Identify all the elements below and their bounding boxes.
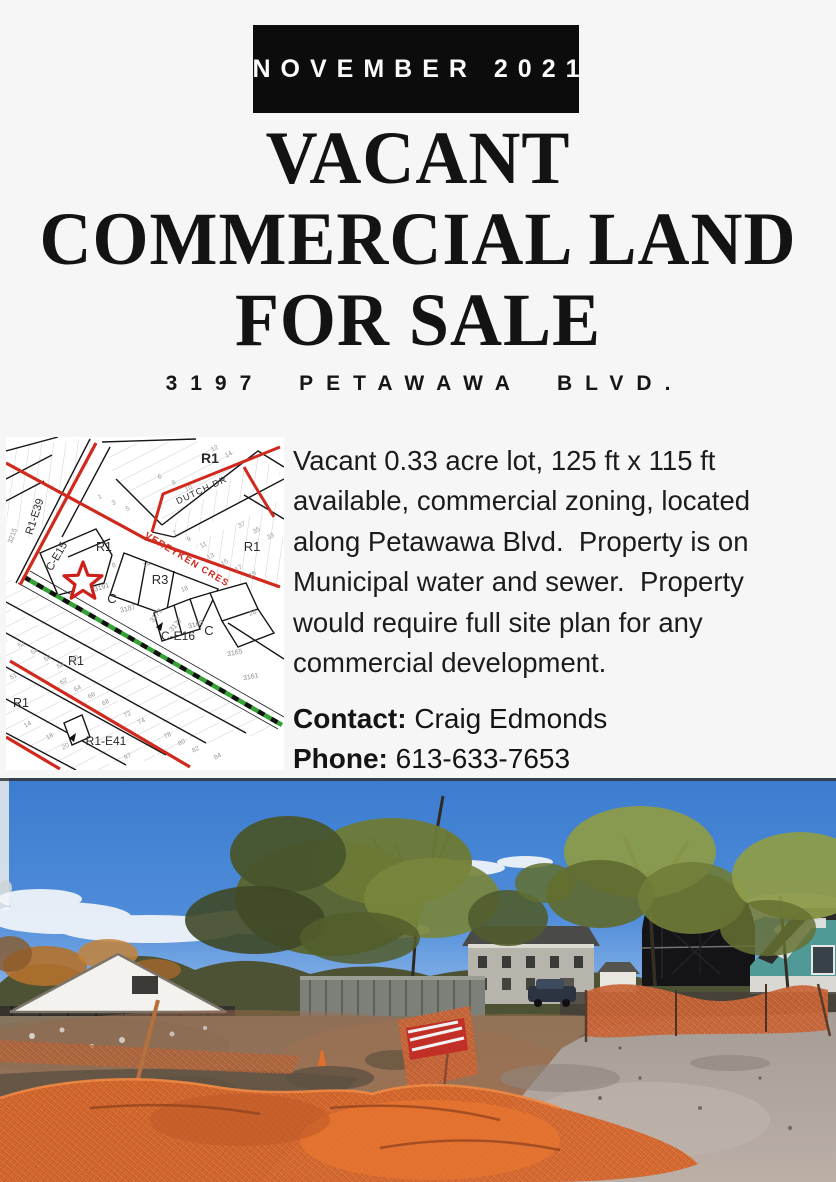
property-photo: [0, 778, 836, 1182]
property-description: Vacant 0.33 acre lot, 125 ft x 115 ft av…: [293, 441, 833, 683]
title-line-2: COMMERCIAL LAND: [0, 199, 836, 280]
zone-label: R1: [13, 696, 29, 710]
zone-label: C: [204, 623, 213, 638]
date-banner: NOVEMBER 2021: [253, 25, 579, 113]
phone-line: Phone: 613-633-7653: [293, 739, 607, 779]
contact-info: Contact: Craig Edmonds Phone: 613-633-76…: [293, 699, 607, 779]
photo-top-edge: [0, 778, 836, 781]
zone-label: R1: [96, 540, 112, 554]
address-subtitle: 3197 PETAWAWA BLVD.: [0, 372, 836, 396]
description-line: Municipal water and sewer. Property: [293, 562, 833, 602]
zone-label: C: [107, 591, 116, 606]
zone-label: R1: [244, 539, 261, 554]
zone-label: R1: [201, 450, 219, 466]
flyer-page: NOVEMBER 2021 VACANT COMMERCIAL LAND FOR…: [0, 0, 836, 1182]
description-line: commercial development.: [293, 643, 833, 683]
phone-number: 613-633-7653: [396, 743, 570, 774]
description-line: available, commercial zoning, located: [293, 481, 833, 521]
page-title: VACANT COMMERCIAL LAND FOR SALE: [0, 118, 836, 361]
title-line-3: FOR SALE: [0, 280, 836, 361]
exception-label: C-E16: [161, 629, 195, 643]
contact-name: Craig Edmonds: [414, 703, 607, 734]
description-line: Vacant 0.33 acre lot, 125 ft x 115 ft: [293, 441, 833, 481]
date-banner-label: NOVEMBER 2021: [242, 55, 589, 84]
phone-label: Phone:: [293, 743, 388, 774]
zoning-map: R1 DUTCH DR R1-E39 C-E15 R1 R3 C R1 C-E1…: [6, 437, 284, 770]
title-line-1: VACANT: [0, 118, 836, 199]
description-line: along Petawawa Blvd. Property is on: [293, 522, 833, 562]
contact-line: Contact: Craig Edmonds: [293, 699, 607, 739]
contact-label: Contact:: [293, 703, 407, 734]
description-line: would require full site plan for any: [293, 603, 833, 643]
exception-label: R1-E41: [86, 734, 127, 748]
zone-label: R3: [152, 572, 169, 587]
